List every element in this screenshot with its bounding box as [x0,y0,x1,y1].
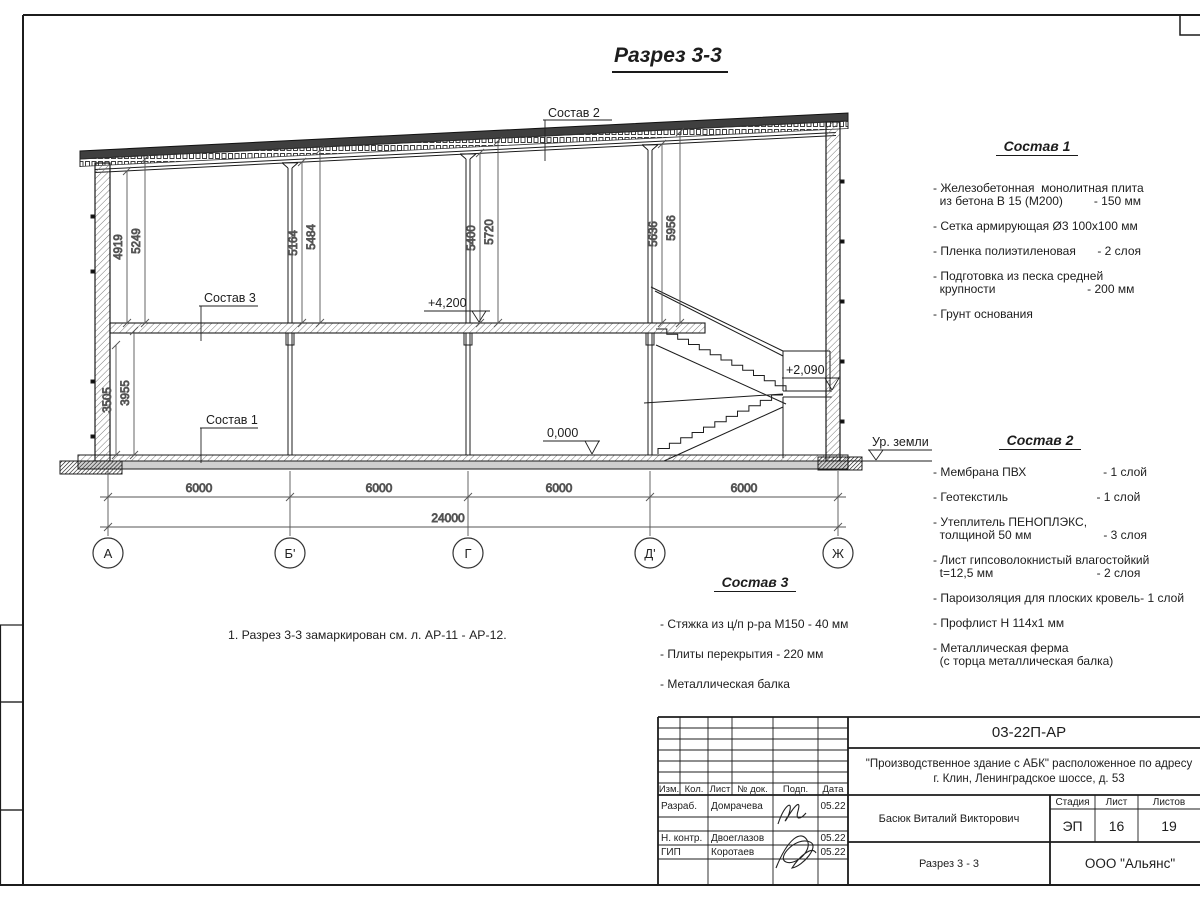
doc-code: 03-22П-АР [848,717,1200,748]
ground-level-text: Ур. земли [872,435,929,449]
legend-line: t=12,5 мм- 2 слоя [933,567,1147,580]
level-text: +2,090 [786,363,825,377]
project-line-2: г. Клин, Ленинградское шоссе, д. 53 [933,772,1124,787]
axis-label: Г [464,546,471,561]
stage-label: Стадия [1050,795,1095,809]
legend-heading: Состав 3 [660,576,850,592]
legend-line: из бетона В 15 (М200)- 150 мм [933,195,1141,208]
dim-text: 5249 [131,228,143,254]
level-text: 0,000 [547,426,578,440]
project-line-1: "Производственное здание с АБК" располож… [866,757,1192,772]
dim-text: 3505 [102,387,114,413]
leader-text: Состав 3 [204,291,256,305]
axis-bubbles: А Б' Г Д' Ж [93,538,853,568]
dimensions: 4919 5249 5164 5484 5400 5720 5636 5956 [93,106,932,568]
dim-text: 5400 [466,225,478,251]
approver-name: Басюк Виталий Викторович [848,795,1050,842]
sheet-note: 1. Разрез 3-3 замаркирован см. л. АР-11 … [228,628,507,642]
sheet-title: Разрез 3 - 3 [848,842,1050,885]
axis-label: Д' [644,546,655,561]
dim-text: 5484 [306,224,318,250]
vdim-axis-d: 5636 5956 [648,128,684,327]
legend-sostav-3: Состав 3 - Стяжка из ц/п р-ра М150 - 40 … [660,576,850,691]
row-date: 05.22 [818,845,848,859]
row-role: Н. контр. [658,831,711,845]
col-header-izm: Изм. [658,783,680,795]
legend-line: (с торца металлическая балка) [933,655,1147,668]
legend-line: - Грунт основания [933,308,1141,321]
building-section [60,113,932,474]
legend-line: - Геотекстиль- 1 слой [933,491,1147,504]
legend-heading: Состав 2 [933,434,1147,450]
leader-labels: Состав 2 Состав 3 Состав 1 [199,106,612,463]
right-wall [826,122,844,461]
span-dim: 6000 [546,481,573,495]
dim-text: 5956 [666,215,678,241]
row-date: 05.22 [818,831,848,845]
legend-heading: Состав 1 [933,140,1141,156]
axis-label: Ж [832,546,844,561]
legend-sostav-1: Состав 1 - Железобетонная монолитная пли… [933,140,1141,321]
columns [282,145,658,455]
col-header-podp: Подп. [773,783,818,795]
row-name: Двоеглазов [708,831,776,845]
page-title-text: Разрез 3-3 [612,44,728,73]
legend-line: - Пароизоляция для плоских кровель- 1 сл… [933,592,1147,605]
dim-text: 4919 [113,234,125,260]
sheet-label: Лист [1095,795,1138,809]
legend-sostav-2: Состав 2 - Мембрана ПВХ- 1 слой - Геотек… [933,434,1147,668]
col-header-ndok: № док. [732,783,773,795]
stage-value: ЭП [1050,809,1095,842]
row-name: Домрачева [708,795,776,817]
dim-text: 5164 [288,230,300,256]
vdim-axis-b: 5164 5484 [288,146,324,327]
corner-stamp-box [1180,15,1200,35]
right-footing [818,457,862,470]
sheets-total: 19 [1138,809,1200,842]
roof [80,113,848,173]
left-wall [91,163,110,461]
project-name: "Производственное здание с АБК" располож… [848,748,1200,795]
legend-line: толщиной 50 мм- 3 слоя [933,529,1147,542]
axis-label: Б' [284,546,295,561]
signature [776,804,816,868]
span-dim: 6000 [186,481,213,495]
row-role: ГИП [658,845,711,859]
leader-text: Состав 2 [548,106,600,120]
legend-line: - Профлист Н 114x1 мм [933,617,1147,630]
legend-line: - Стяжка из ц/п р-ра М150 - 40 мм [660,618,850,631]
row-role: Разраб. [658,795,711,817]
col-header-kol: Кол. [680,783,708,795]
level-text: +4,200 [428,296,467,310]
total-dim: 24000 [431,511,465,525]
col-header-data: Дата [818,783,848,795]
bottom-dims: 6000 6000 6000 6000 24000 [100,471,846,536]
dim-text: 5636 [648,221,660,247]
vdim-axis-a: 4919 5249 [113,155,149,327]
sheet-number: 16 [1095,809,1138,842]
drawing-sheet: 4919 5249 5164 5484 5400 5720 5636 5956 [0,0,1200,900]
legend-line: - Металлическая балка [660,678,850,691]
dim-text: 5720 [484,219,496,245]
sheets-label: Листов [1138,795,1200,809]
legend-line: - Пленка полиэтиленовая- 2 слоя [933,245,1141,258]
page-title: Разрез 3-3 [612,44,728,73]
col-header-list: Лист [708,783,732,795]
floor-slab [110,323,705,333]
row-date: 05.22 [818,795,848,817]
leader-text: Состав 1 [206,413,258,427]
span-dim: 6000 [731,481,758,495]
legend-line: - Плиты перекрытия - 220 мм [660,648,850,661]
legend-line: крупности- 200 мм [933,283,1141,296]
left-edge-boxes [1,625,24,885]
row-name: Коротаев [708,845,776,859]
dim-text: 3955 [120,380,132,406]
legend-line: - Сетка армирующая Ø3 100x100 мм [933,220,1141,233]
ground-slab [60,455,932,474]
axis-label: А [104,546,113,561]
vdim-axis-g: 5400 5720 [466,137,502,327]
span-dim: 6000 [366,481,393,495]
left-footing [60,461,122,474]
company-name: ООО "Альянс" [1050,842,1200,885]
legend-line: - Мембрана ПВХ- 1 слой [933,466,1147,479]
